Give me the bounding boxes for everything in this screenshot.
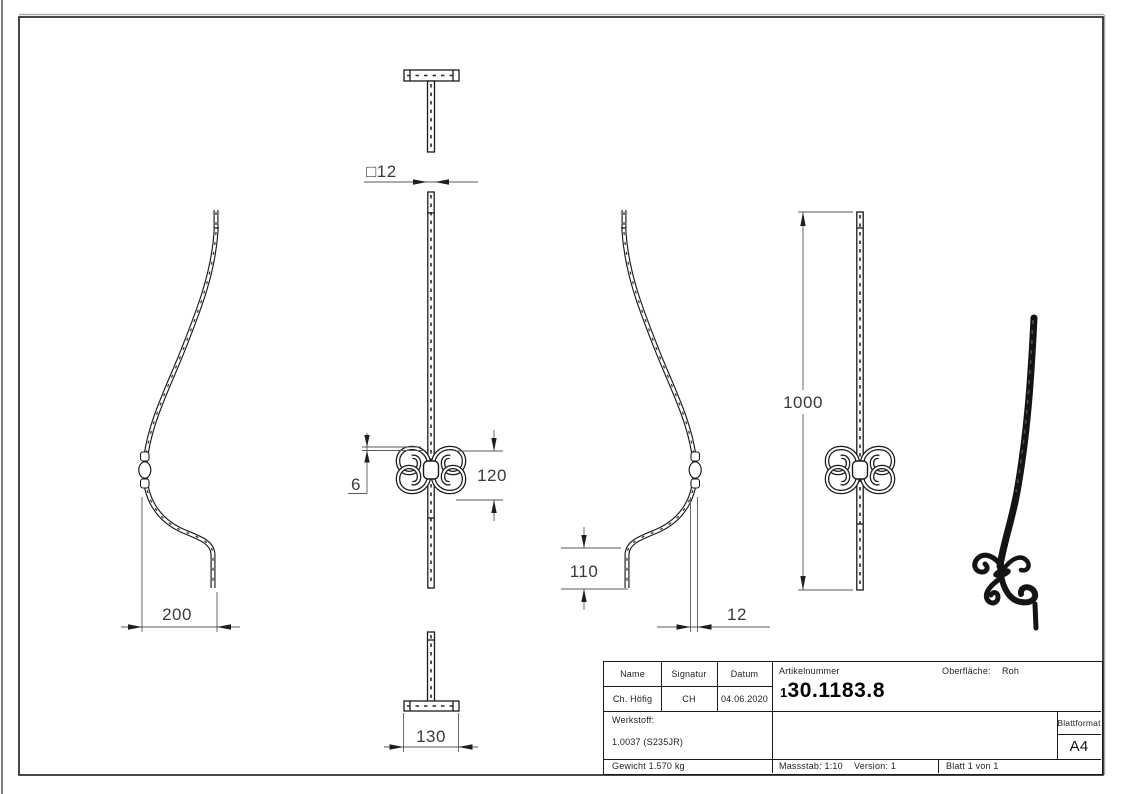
tb-artikelnummer-value: 130.1183.8	[780, 679, 885, 703]
tb-blatt: Blatt 1 von 1	[946, 759, 1046, 773]
tb-werkstoff-value: 1.0037 (S235JR)	[612, 734, 762, 750]
view-side-left	[139, 210, 219, 588]
tb-name-label: Name	[604, 662, 661, 686]
title-block: Name Signatur Datum Ch. Höfig CH 04.06.2…	[603, 661, 1103, 775]
tb-name-value: Ch. Höfig	[604, 686, 661, 711]
view-side-right	[621, 210, 701, 588]
view-3d-render	[975, 318, 1036, 628]
dim-square12-label: □12	[366, 162, 397, 181]
dim-200-label: 200	[162, 605, 192, 624]
dim-110: 110	[561, 527, 628, 610]
view-bottom	[404, 632, 459, 711]
tb-artikelnummer-main: 30.1183.8	[787, 679, 885, 703]
tb-datum-label: Datum	[717, 662, 772, 686]
tb-datum-value: 04.06.2020	[717, 686, 772, 711]
dim-130: 130	[384, 713, 478, 752]
tb-version: Version: 1	[854, 759, 924, 773]
dim-200: 200	[121, 497, 240, 632]
tb-blattformat-value: A4	[1057, 734, 1101, 759]
dim-110-label: 110	[570, 562, 599, 581]
tb-signatur-label: Signatur	[661, 662, 717, 686]
tb-artikelnummer-prefix: 1	[780, 685, 787, 700]
tb-artikelnummer-label: Artikelnummer	[779, 665, 899, 677]
dim-1000: 1000	[783, 212, 853, 590]
tb-divider	[772, 662, 773, 773]
tb-werkstoff-label: Werkstoff:	[612, 712, 762, 728]
tb-oberflaeche-value: Roh	[1002, 665, 1052, 677]
tb-divider	[938, 759, 939, 773]
dim-12-label: 12	[727, 605, 747, 624]
dim-130-label: 130	[416, 727, 446, 746]
tb-signatur-value: CH	[661, 686, 717, 711]
dim-120-label: 120	[477, 466, 507, 485]
tb-blattformat-label: Blattformat	[1057, 711, 1101, 734]
view-elevation	[827, 212, 893, 590]
tb-gewicht: Gewicht 1.570 kg	[612, 759, 767, 773]
tb-oberflaeche-label: Oberfläche:	[942, 665, 1002, 677]
drawing-sheet: □12 120 6	[0, 0, 1123, 794]
view-front	[398, 192, 464, 588]
dim-square12: □12	[364, 162, 478, 185]
dim-6-label: 6	[351, 475, 361, 494]
dim-1000-label: 1000	[783, 393, 823, 412]
view-top	[404, 70, 459, 152]
